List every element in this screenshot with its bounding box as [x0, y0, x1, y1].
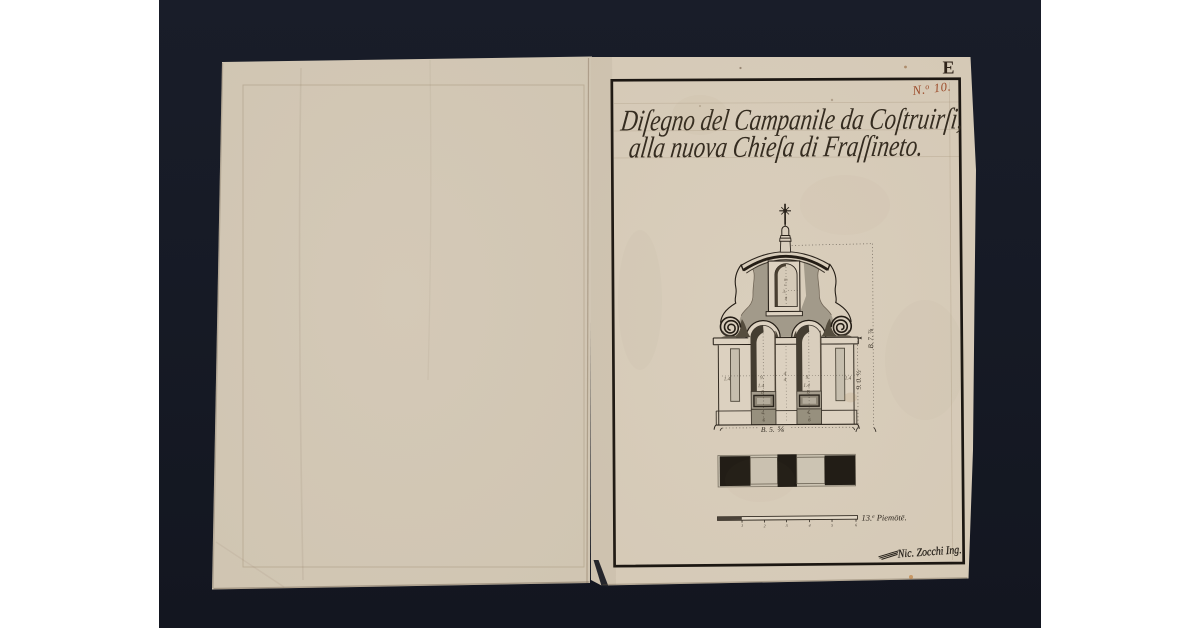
- svg-text:1: 1: [741, 523, 743, 528]
- svg-text:5: 5: [831, 523, 833, 528]
- svg-text:4.: 4.: [807, 409, 811, 416]
- svg-text:4: 4: [784, 376, 787, 383]
- svg-text:3.: 3.: [783, 290, 787, 295]
- svg-text:9.: 9.: [806, 375, 810, 381]
- svg-text:6: 6: [762, 418, 765, 424]
- svg-text:B. 7. ⅞: B. 7. ⅞: [867, 328, 875, 348]
- svg-text:alla nuova Chieſa di Fraſſinet: alla nuova Chieſa di Fraſſineto.: [627, 129, 926, 165]
- svg-text:1.4: 1.4: [803, 382, 810, 389]
- svg-text:B. 5. ⅚: B. 5. ⅚: [761, 425, 785, 434]
- svg-text:6: 6: [855, 522, 857, 527]
- svg-text:1.4: 1.4: [845, 375, 852, 382]
- svg-text:3: 3: [786, 523, 788, 528]
- svg-text:13.e Piemōtē.: 13.e Piemōtē.: [861, 512, 906, 522]
- svg-text:E: E: [942, 58, 954, 78]
- svg-text:6: 6: [808, 417, 811, 423]
- svg-text:4: 4: [809, 523, 811, 528]
- svg-text:9. 0. ½: 9. 0. ½: [855, 370, 863, 390]
- svg-text:4.: 4.: [761, 409, 765, 416]
- svg-text:2: 2: [764, 523, 766, 528]
- svg-text:4: 4: [784, 370, 787, 377]
- svg-text:1.4: 1.4: [724, 375, 731, 382]
- svg-text:9.: 9.: [760, 375, 764, 381]
- svg-text:1.4: 1.4: [758, 382, 765, 389]
